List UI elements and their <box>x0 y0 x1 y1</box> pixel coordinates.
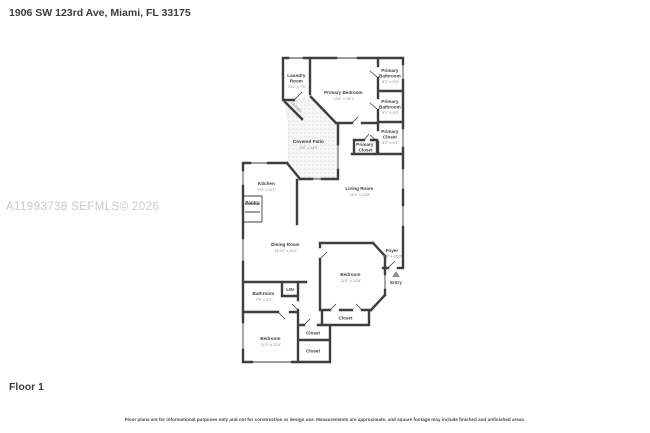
room-label-living-room: Living Room 21'1" x 13'8" <box>345 186 374 197</box>
room-label-closet-hall-upper: Closet <box>306 331 321 336</box>
room-label-bathroom: Bathroom 7'9" x 5'2" <box>253 291 276 302</box>
room-label-bedroom-left: Bedroom 11'0" x 11'6" <box>260 336 282 347</box>
floor-plan-svg: Laundry Room 3'11" x 7'0" Primary Bedroo… <box>0 0 650 433</box>
room-label-kitchen: Kitchen 9'9" x 11'0" <box>258 181 278 192</box>
room-label-primary-closet-right: Primary Closet 5'2" x 5'1" <box>381 129 399 145</box>
room-label-closet-bedroom-right: Closet <box>338 316 353 321</box>
floor-plan-page: 1906 SW 123rd Ave, Miami, FL 33175 A1199… <box>0 0 650 433</box>
room-label-entry: Entry <box>390 280 402 285</box>
room-label-bedroom-right: Bedroom 11'6" x 13'8" <box>340 272 362 283</box>
room-label-primary-closet-small: Primary Closet <box>356 142 374 153</box>
room-label-closet-hall-lower: Closet <box>306 349 321 354</box>
room-label-pantry: Pantry <box>245 200 260 205</box>
room-label-laundry: Laundry Room 3'11" x 7'0" <box>287 73 307 89</box>
entry-arrow-icon <box>392 271 400 277</box>
room-label-foyer: Foyer 6'5" x 4'10" <box>383 248 403 259</box>
room-label-dining-room: Dining Room 14'10" x 10'1" <box>271 242 301 253</box>
room-label-primary-bathroom-2: Primary Bathroom 5'2" x 6'9" <box>379 99 402 115</box>
room-label-linen-closet: LIN <box>286 287 294 292</box>
room-label-primary-bedroom: Primary Bedroom 13'0" x 15'1" <box>324 90 364 101</box>
room-label-primary-bathroom-1: Primary Bathroom 5'2" x 5'6" <box>379 68 402 84</box>
